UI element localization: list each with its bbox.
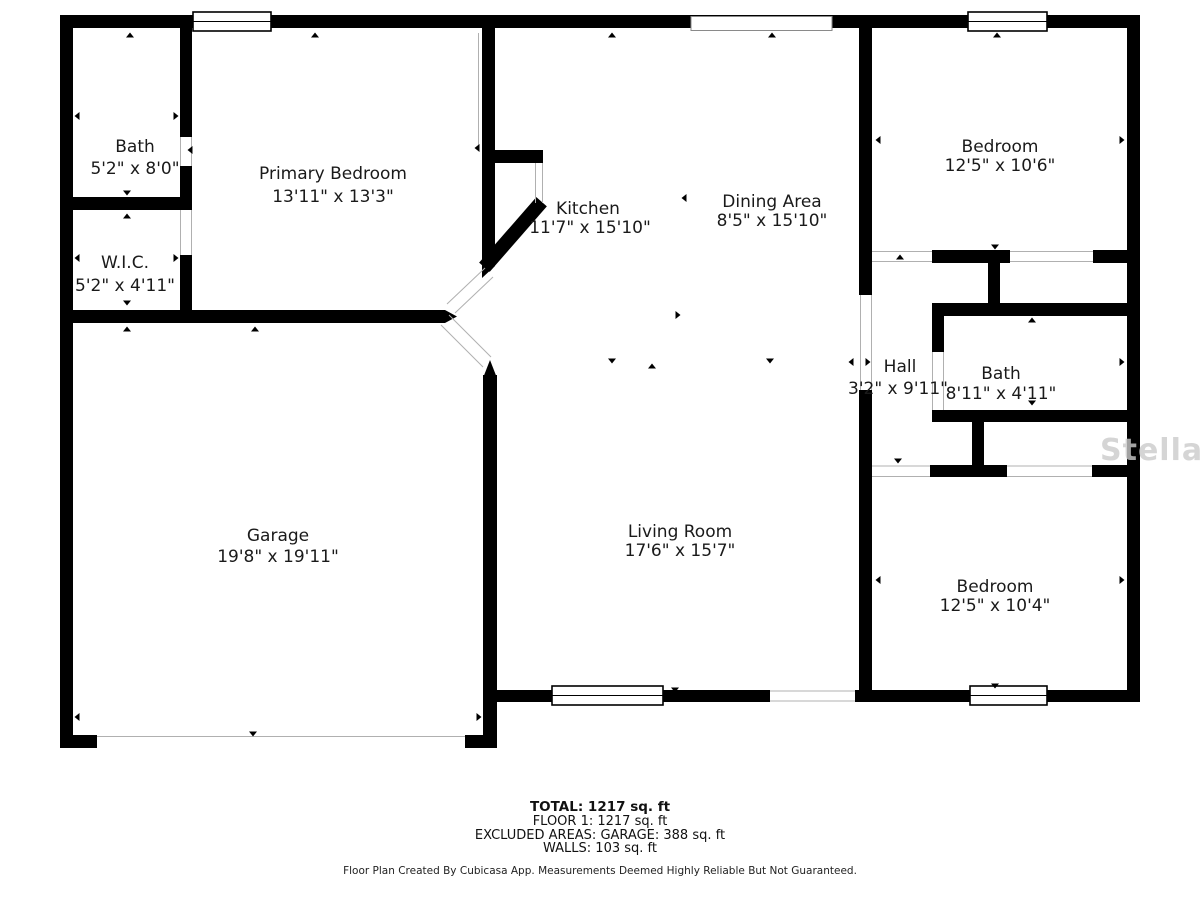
- room-dims-bedroom-br: 12'5" x 10'4": [940, 596, 1051, 616]
- room-dims-primary-bedroom: 13'11" x 13'3": [272, 187, 394, 207]
- window-top-left: [193, 12, 271, 31]
- room-labels: Bath 5'2" x 8'0" Primary Bedroom 13'11" …: [75, 137, 1056, 616]
- window-living-room: [552, 686, 663, 705]
- windows: [193, 12, 1047, 705]
- room-name-primary-bedroom: Primary Bedroom: [259, 164, 407, 184]
- room-dims-wic: 5'2" x 4'11": [75, 276, 175, 296]
- room-name-kitchen: Kitchen: [556, 199, 620, 219]
- summary-block: TOTAL: 1217 sq. ft FLOOR 1: 1217 sq. ft …: [0, 801, 1200, 877]
- window-top-right: [968, 12, 1047, 31]
- room-name-wic: W.I.C.: [101, 253, 149, 273]
- room-name-bath-right: Bath: [981, 364, 1021, 384]
- room-dims-kitchen: 11'7" x 15'10": [529, 218, 651, 238]
- summary-excluded: EXCLUDED AREAS: GARAGE: 388 sq. ft: [0, 829, 1200, 843]
- window-bedroom-bottom: [970, 686, 1047, 705]
- room-dims-living-room: 17'6" x 15'7": [625, 541, 736, 561]
- sliding-opening-dining: [691, 17, 832, 31]
- room-dims-garage: 19'8" x 19'11": [217, 547, 339, 567]
- room-name-living-room: Living Room: [628, 522, 732, 542]
- room-dims-bath-right: 8'11" x 4'11": [946, 384, 1057, 404]
- room-dims-hall: 3'2" x 9'11": [848, 379, 948, 399]
- room-name-bath-upper: Bath: [115, 137, 155, 157]
- room-name-garage: Garage: [247, 526, 309, 546]
- disclaimer-text: Floor Plan Created By Cubicasa App. Meas…: [0, 865, 1200, 877]
- room-name-bedroom-br: Bedroom: [957, 577, 1034, 597]
- room-name-hall: Hall: [884, 357, 917, 377]
- room-name-dining-area: Dining Area: [722, 192, 821, 212]
- summary-floor1: FLOOR 1: 1217 sq. ft: [0, 815, 1200, 829]
- floor-plan-page: Bath 5'2" x 8'0" Primary Bedroom 13'11" …: [0, 0, 1200, 900]
- room-dims-bedroom-tr: 12'5" x 10'6": [945, 156, 1056, 176]
- room-name-bedroom-tr: Bedroom: [962, 137, 1039, 157]
- room-dims-dining-area: 8'5" x 15'10": [717, 211, 828, 231]
- summary-total: TOTAL: 1217 sq. ft: [0, 801, 1200, 815]
- stellar-mls-watermark: StellarMLS: [1100, 433, 1200, 468]
- walls: [60, 15, 1140, 748]
- room-dims-bath-upper: 5'2" x 8'0": [90, 159, 179, 179]
- floor-plan-canvas: Bath 5'2" x 8'0" Primary Bedroom 13'11" …: [0, 0, 1200, 790]
- summary-walls: WALLS: 103 sq. ft: [0, 842, 1200, 856]
